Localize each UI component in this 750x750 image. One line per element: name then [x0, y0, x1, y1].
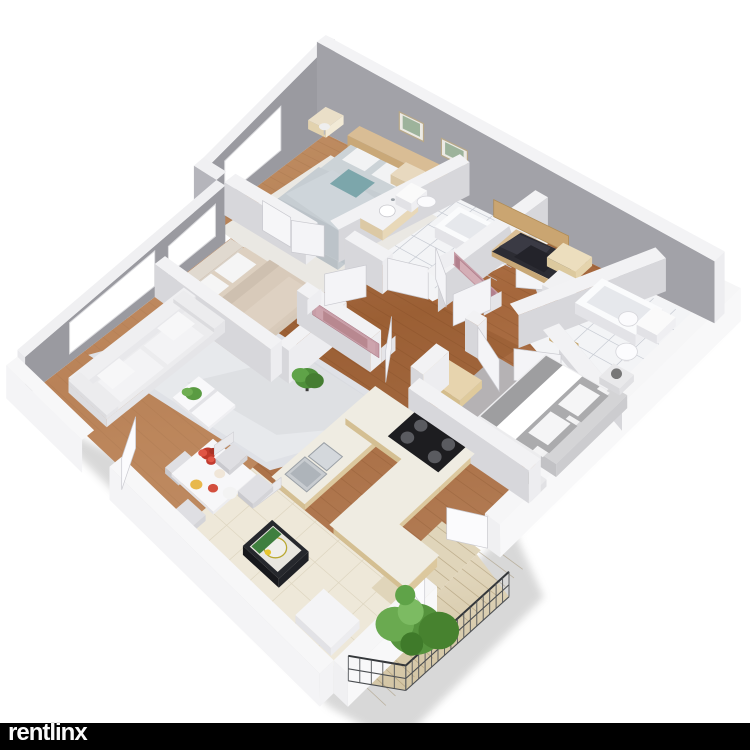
svg-text:rentlinx: rentlinx — [8, 719, 88, 746]
